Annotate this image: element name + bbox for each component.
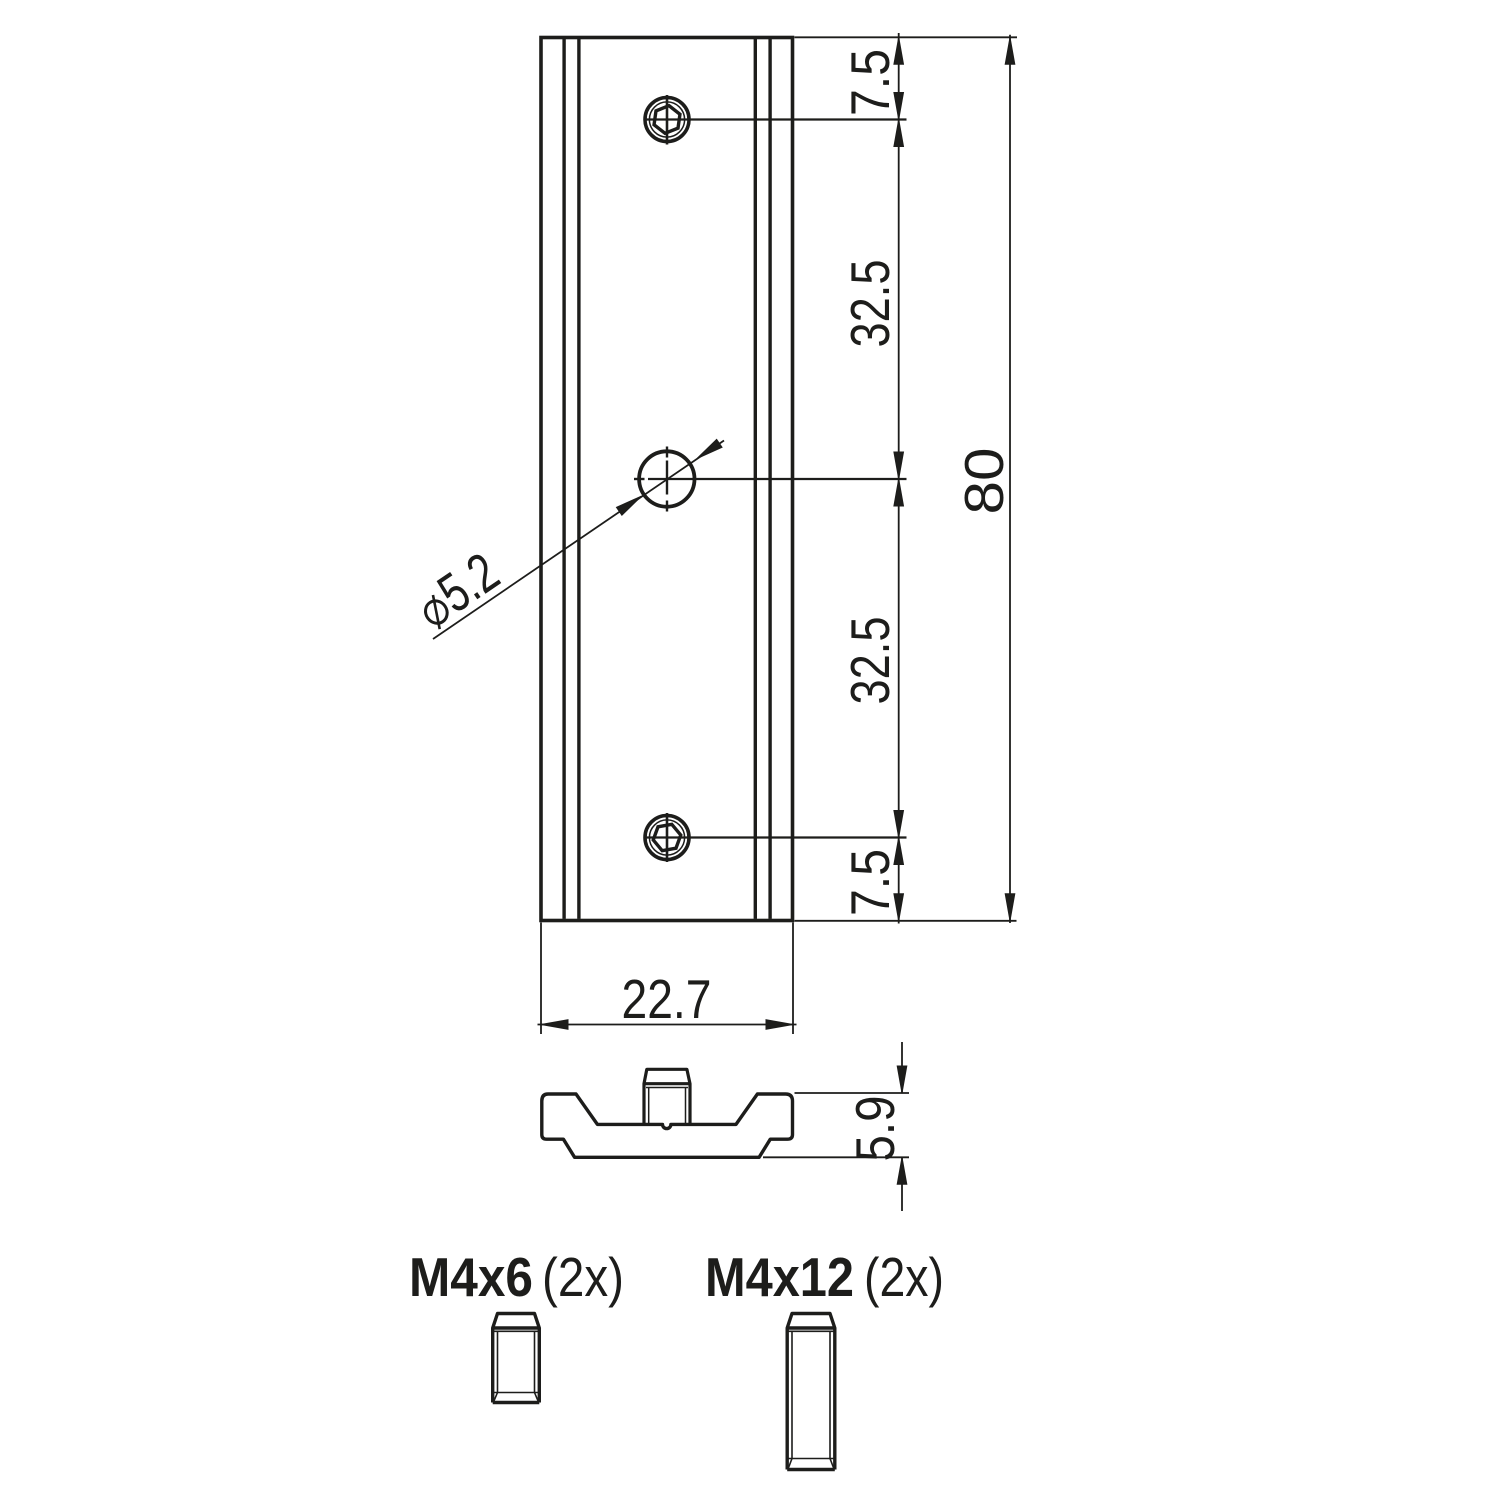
svg-text:32.5: 32.5: [839, 260, 901, 348]
svg-text:22.7: 22.7: [622, 968, 712, 1030]
svg-text:32.5: 32.5: [839, 617, 901, 705]
svg-text:7.5: 7.5: [839, 849, 901, 916]
svg-text:80: 80: [953, 448, 1015, 515]
svg-text:(2x): (2x): [542, 1246, 624, 1308]
svg-text:5.9: 5.9: [844, 1096, 906, 1162]
svg-text:M4x6: M4x6: [409, 1246, 533, 1308]
svg-text:5.2: 5.2: [427, 540, 510, 624]
svg-text:7.5: 7.5: [839, 49, 901, 116]
svg-text:(2x): (2x): [864, 1246, 944, 1308]
svg-text:M4x12: M4x12: [705, 1246, 854, 1308]
